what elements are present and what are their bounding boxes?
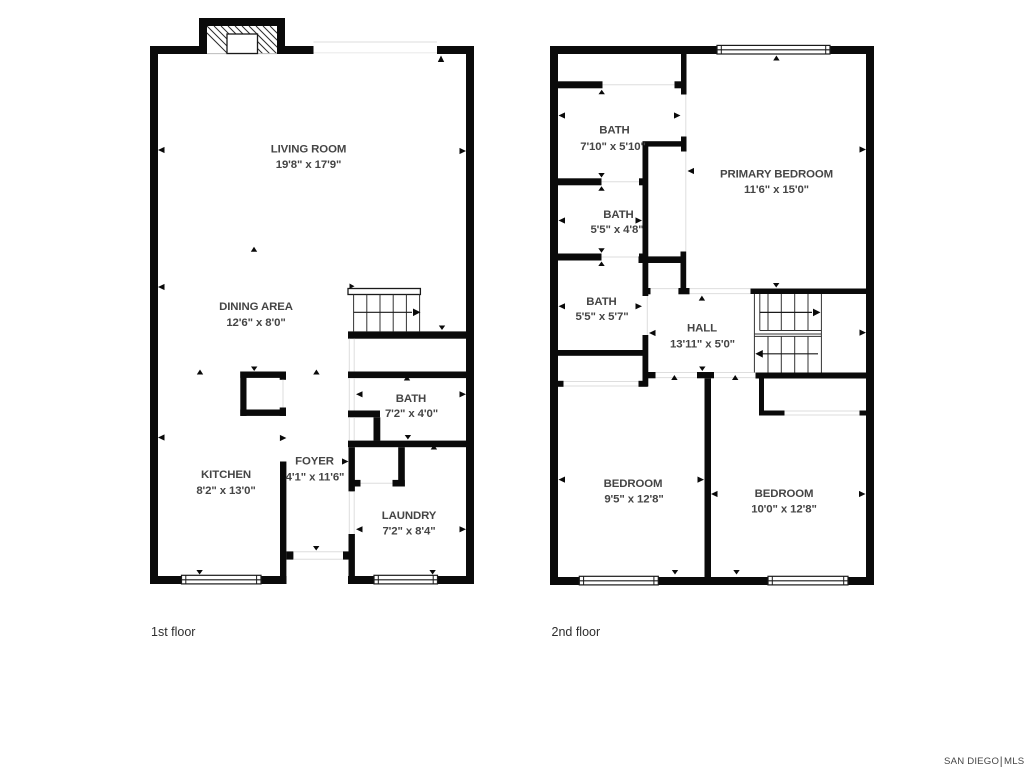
svg-text:2nd floor: 2nd floor: [552, 625, 601, 639]
svg-text:|: |: [1000, 756, 1003, 768]
svg-text:7'10" x 5'10": 7'10" x 5'10": [580, 141, 646, 153]
svg-text:8'2" x 13'0": 8'2" x 13'0": [196, 485, 255, 497]
svg-text:19'8" x 17'9": 19'8" x 17'9": [276, 159, 342, 171]
svg-text:BEDROOM: BEDROOM: [755, 488, 814, 500]
svg-text:BATH: BATH: [586, 296, 616, 308]
svg-text:HALL: HALL: [687, 323, 717, 335]
svg-text:12'6" x 8'0": 12'6" x 8'0": [226, 317, 285, 329]
svg-text:FOYER: FOYER: [295, 456, 334, 468]
svg-text:BATH: BATH: [603, 209, 633, 221]
svg-text:PRIMARY BEDROOM: PRIMARY BEDROOM: [720, 169, 833, 181]
svg-text:5'5" x 5'7": 5'5" x 5'7": [575, 311, 628, 323]
svg-text:BATH: BATH: [396, 393, 426, 405]
svg-text:13'11" x 5'0": 13'11" x 5'0": [670, 339, 735, 351]
svg-text:BATH: BATH: [599, 125, 629, 137]
svg-text:11'6" x 15'0": 11'6" x 15'0": [744, 184, 809, 196]
svg-text:SAN DIEGO: SAN DIEGO: [944, 756, 999, 767]
svg-text:10'0" x 12'8": 10'0" x 12'8": [751, 504, 817, 516]
svg-text:1st floor: 1st floor: [151, 625, 195, 639]
svg-text:KITCHEN: KITCHEN: [201, 469, 251, 481]
svg-text:LIVING ROOM: LIVING ROOM: [271, 144, 346, 156]
svg-text:9'5" x 12'8": 9'5" x 12'8": [604, 494, 663, 506]
svg-text:BEDROOM: BEDROOM: [604, 478, 663, 490]
svg-text:7'2" x 4'0": 7'2" x 4'0": [385, 408, 438, 420]
svg-text:MLS: MLS: [1004, 756, 1024, 767]
svg-text:4'1" x 11'6": 4'1" x 11'6": [286, 472, 345, 484]
svg-text:5'5" x 4'8": 5'5" x 4'8": [590, 224, 643, 236]
svg-text:LAUNDRY: LAUNDRY: [382, 510, 437, 522]
svg-text:DINING AREA: DINING AREA: [219, 301, 293, 313]
svg-text:7'2" x 8'4": 7'2" x 8'4": [382, 526, 435, 538]
